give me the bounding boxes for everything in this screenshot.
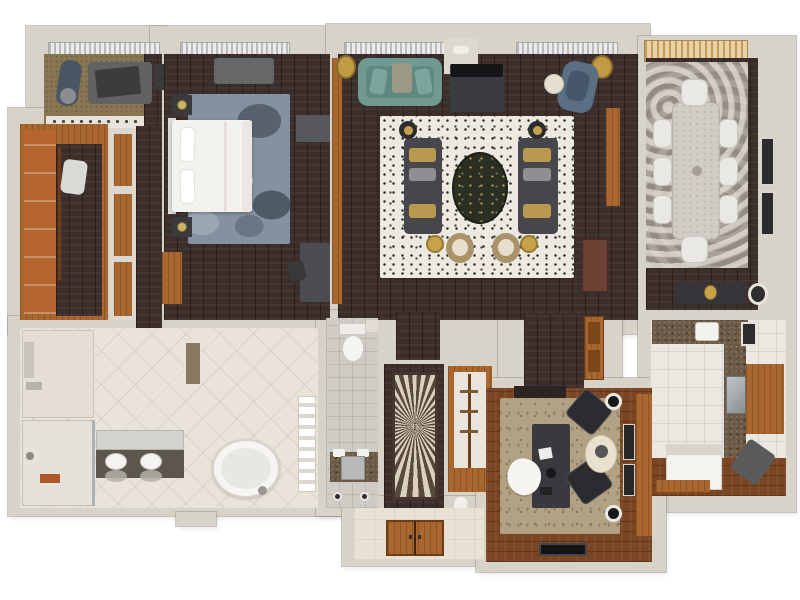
- kitchen-sink: [695, 322, 719, 341]
- dining-chair-left-3: [653, 195, 672, 224]
- shower-glass: [92, 420, 95, 506]
- bedroom-door-panel: [162, 252, 182, 304]
- dining-chair-right-3: [719, 195, 738, 224]
- barrel-chair-2-seat: [498, 239, 514, 256]
- bathtub-faucet: [258, 486, 267, 495]
- dining-table-center: [692, 166, 702, 176]
- floor-plan-canvas: [0, 0, 800, 600]
- coffee-table-marble: [452, 152, 508, 224]
- gym-bike-wheel: [60, 88, 76, 104]
- wc-toilet-tank: [339, 323, 366, 335]
- tv-screen: [451, 64, 503, 77]
- bathtub-inner: [221, 448, 271, 489]
- wall-step-bathroom: [176, 512, 216, 526]
- foyer-sunburst-rug: [392, 372, 438, 500]
- vanity-sink-2-reflection: [140, 470, 162, 482]
- coat-hanger-3: [460, 430, 478, 433]
- wc-sconce-2: [360, 492, 369, 501]
- wardrobe-recess-3: [114, 262, 132, 316]
- coat-hanger-1: [460, 390, 478, 393]
- kitchen-artwork: [741, 322, 757, 346]
- bedroom2-speaker-bottom: [605, 505, 622, 522]
- bedroom-bench: [214, 58, 274, 84]
- bedroom2-tv-panel: [539, 543, 587, 556]
- cream-side-table: [544, 74, 564, 94]
- wc-toilet-bowl: [342, 335, 364, 362]
- sofa-right-pillow-gray: [523, 168, 551, 181]
- bedroom2-artwork-1: [623, 424, 635, 460]
- bedroom2-desk-paper: [538, 447, 553, 460]
- foyer-closet-top: [396, 312, 440, 360]
- bedroom-dresser: [296, 115, 330, 142]
- nightstand-lamp-top: [177, 100, 187, 110]
- hallway-floor: [136, 126, 162, 330]
- shower-stall: [22, 420, 94, 506]
- closet-hanging-clothes: [60, 158, 88, 195]
- entry-door-split: [414, 521, 416, 555]
- dining-artwork-1: [760, 137, 775, 186]
- sofa-left-pillow-gold-2: [409, 204, 436, 218]
- passage-floor: [524, 314, 584, 394]
- coat-hanger-2: [460, 410, 478, 413]
- dining-chair-left-2: [653, 157, 672, 186]
- gold-wall-disc-left: [336, 55, 356, 79]
- bedroom2-artwork-2: [623, 464, 635, 496]
- passage-door-inset-1: [588, 322, 600, 344]
- sofa-right-pillow-gold-2: [523, 204, 551, 218]
- gym-treadmill-belt: [95, 66, 142, 98]
- bathroom-artwork: [184, 341, 202, 386]
- closet-hanger-rail: [58, 148, 61, 280]
- vanity-sink-2: [140, 453, 162, 470]
- bathroom-alcove-item: [26, 382, 42, 390]
- wc-sconce-1: [333, 492, 342, 501]
- bedroom2-desk-item-1: [546, 468, 556, 478]
- credenza-gold-decor: [704, 285, 717, 300]
- dining-chair-right-1: [719, 119, 738, 148]
- closet-shelves-left: [24, 130, 56, 314]
- shower-fixture: [26, 452, 34, 460]
- vanity-sink-1: [105, 453, 127, 470]
- gym-speaker: [154, 64, 164, 90]
- vanity-sink-1-reflection: [105, 470, 127, 482]
- entry-door-knob-2: [418, 535, 421, 539]
- bedroom2-egg-top: [595, 445, 608, 458]
- kitchen-dishwasher: [726, 376, 746, 414]
- bedroom2-speaker-top: [605, 393, 622, 410]
- wc-vessel-sink: [341, 456, 365, 480]
- wc-corner-shelf: [366, 320, 378, 332]
- teal-sofa-basket: [392, 63, 412, 93]
- kitchen-wood-mat: [656, 480, 710, 492]
- side-table-right-gold: [533, 126, 542, 135]
- gold-side-table-1: [426, 235, 444, 253]
- vanity-mirror: [96, 430, 184, 450]
- dining-chair-left-1: [653, 119, 672, 148]
- living-column-light: [453, 46, 469, 54]
- kitchen-cabinets-right: [746, 364, 784, 434]
- bathroom-towel-bar: [24, 342, 34, 378]
- dining-artwork-2: [760, 191, 775, 236]
- passage-door-inset-2: [588, 350, 600, 372]
- entry-door-knob-1: [409, 535, 412, 539]
- bedroom2-desk-item-2: [540, 487, 552, 495]
- sofa-left-pillow-gold-1: [409, 148, 436, 162]
- sofa-right-pillow-gold-1: [523, 148, 551, 162]
- bed-duvet-fold: [224, 121, 227, 211]
- gold-side-table-2: [520, 235, 538, 253]
- wardrobe-recess-1: [114, 134, 132, 186]
- towel-rack: [298, 396, 316, 492]
- shower-mat-orange: [40, 474, 60, 483]
- dining-chair-top: [681, 79, 708, 106]
- living-left-wood-wall: [332, 58, 342, 304]
- brown-cabinet: [582, 239, 608, 292]
- barrel-chair-1-seat: [452, 239, 468, 256]
- bed-pillow-2: [179, 169, 195, 205]
- dining-chair-right-2: [719, 157, 738, 186]
- dining-chair-bottom: [681, 236, 708, 263]
- side-table-left-gold: [404, 126, 413, 135]
- bed-blanket-edge: [242, 121, 252, 211]
- coat-closet-shelf: [454, 468, 486, 484]
- wardrobe-recess-2: [114, 194, 132, 256]
- sofa-left-pillow-gray: [409, 168, 436, 181]
- kitchen-island-lip: [666, 444, 722, 455]
- nightstand-lamp-bottom: [177, 222, 187, 232]
- round-mirror-stand: [748, 283, 768, 305]
- bed-pillow-1: [179, 127, 195, 163]
- bedroom2-right-wood-wall: [636, 394, 652, 536]
- living-right-wood-cabinet: [606, 108, 620, 206]
